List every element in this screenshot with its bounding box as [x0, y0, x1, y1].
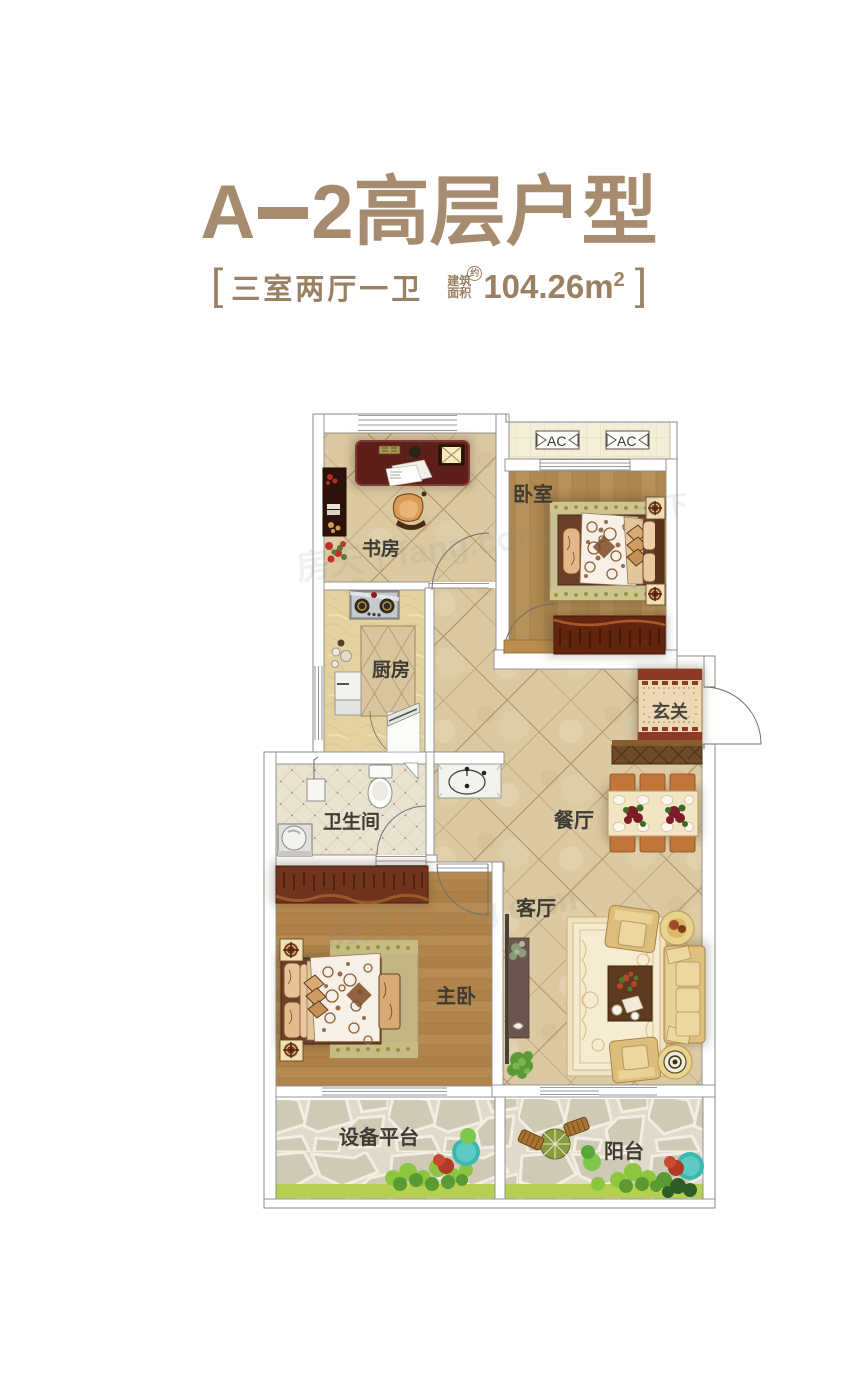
svg-text:天下: 天下: [635, 489, 691, 526]
svg-text:厨房: 厨房: [372, 658, 410, 681]
svg-text:AC: AC: [547, 433, 566, 449]
svg-text:客厅: 客厅: [515, 896, 556, 920]
svg-text:玄关: 玄关: [652, 701, 688, 722]
svg-text:餐厅: 餐厅: [554, 808, 594, 832]
svg-text:设备平台: 设备平台: [339, 1125, 419, 1149]
svg-text:卧室: 卧室: [513, 482, 553, 506]
svg-text:AC: AC: [617, 433, 636, 449]
svg-text:书房: 书房: [362, 537, 400, 560]
svg-text:卫生间: 卫生间: [323, 810, 380, 833]
svg-text:主卧: 主卧: [436, 984, 476, 1008]
svg-text:阳台: 阳台: [604, 1139, 644, 1163]
